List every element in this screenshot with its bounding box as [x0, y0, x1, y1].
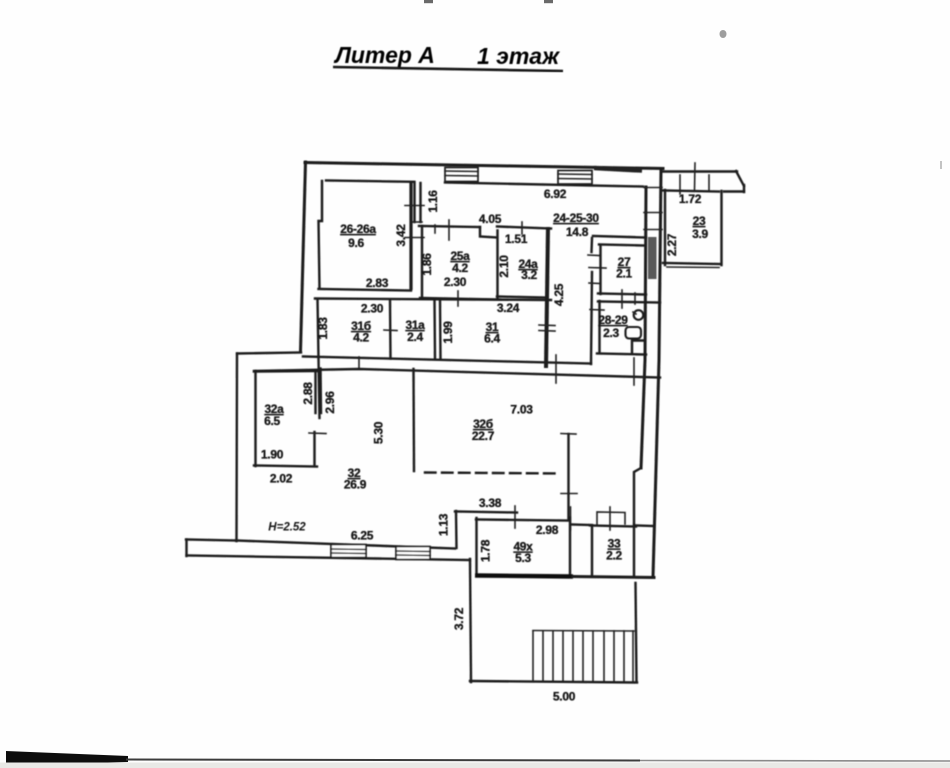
svg-text:6.92: 6.92 — [544, 187, 567, 201]
svg-text:9.6: 9.6 — [348, 236, 364, 250]
svg-text:5.30: 5.30 — [372, 421, 386, 444]
svg-text:3.72: 3.72 — [452, 607, 466, 630]
svg-text:4.25: 4.25 — [552, 283, 566, 306]
svg-text:4.2: 4.2 — [353, 331, 369, 345]
svg-text:1.72: 1.72 — [679, 192, 702, 206]
svg-text:Литер А: Литер А — [333, 42, 435, 68]
svg-text:3.2: 3.2 — [521, 268, 537, 282]
svg-text:2.27: 2.27 — [665, 233, 679, 256]
svg-text:1.86: 1.86 — [420, 253, 434, 276]
svg-text:1.16: 1.16 — [426, 190, 440, 213]
svg-text:2.98: 2.98 — [536, 523, 559, 537]
svg-text:3.42: 3.42 — [394, 224, 408, 247]
svg-text:1.51: 1.51 — [505, 232, 528, 246]
svg-text:2.1: 2.1 — [616, 267, 632, 281]
svg-text:4.05: 4.05 — [479, 212, 502, 226]
svg-text:2.30: 2.30 — [361, 302, 384, 316]
svg-text:28-29: 28-29 — [598, 313, 628, 327]
svg-text:3.9: 3.9 — [692, 227, 708, 241]
svg-text:6.4: 6.4 — [484, 332, 500, 346]
svg-text:24-25-30: 24-25-30 — [553, 211, 599, 225]
svg-text:3.24: 3.24 — [497, 301, 520, 315]
svg-text:H=2.52: H=2.52 — [268, 522, 306, 534]
svg-text:5.00: 5.00 — [553, 690, 576, 704]
svg-text:5.3: 5.3 — [515, 551, 531, 565]
svg-text:1.78: 1.78 — [479, 539, 493, 562]
svg-text:1.99: 1.99 — [441, 321, 455, 344]
svg-text:2.30: 2.30 — [444, 275, 467, 289]
svg-text:2.3: 2.3 — [603, 326, 619, 340]
svg-text:2.83: 2.83 — [366, 276, 389, 290]
svg-text:1.83: 1.83 — [316, 317, 330, 340]
svg-text:2.88: 2.88 — [301, 382, 315, 405]
svg-text:26-26а: 26-26а — [340, 222, 376, 236]
svg-text:23: 23 — [693, 214, 706, 228]
svg-text:22.7: 22.7 — [472, 429, 495, 443]
svg-text:2.2: 2.2 — [606, 549, 622, 563]
svg-text:1 этаж: 1 этаж — [477, 43, 560, 69]
svg-text:1.13: 1.13 — [437, 513, 451, 536]
svg-text:2.02: 2.02 — [270, 472, 293, 486]
svg-text:1.90: 1.90 — [261, 448, 284, 462]
svg-text:26.9: 26.9 — [344, 478, 367, 492]
svg-text:2.4: 2.4 — [407, 330, 423, 344]
svg-text:3.38: 3.38 — [479, 496, 502, 510]
svg-text:4.2: 4.2 — [452, 261, 468, 275]
svg-text:6.25: 6.25 — [351, 529, 374, 543]
svg-text:2.96: 2.96 — [323, 391, 337, 414]
svg-text:2.10: 2.10 — [497, 255, 511, 278]
svg-text:6.5: 6.5 — [264, 414, 280, 428]
svg-text:7.03: 7.03 — [510, 403, 533, 417]
svg-text:14.8: 14.8 — [566, 225, 589, 239]
